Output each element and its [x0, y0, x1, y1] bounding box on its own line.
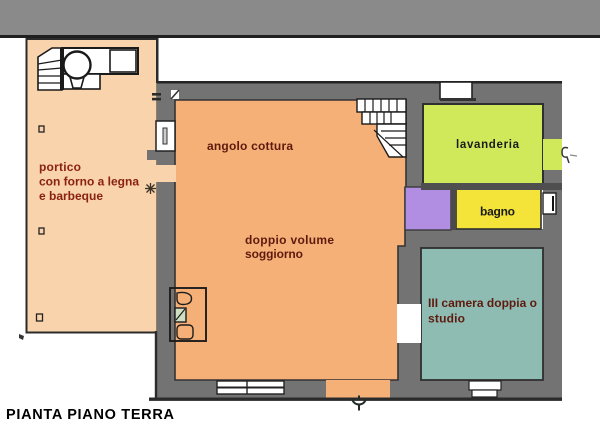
svg-text:portico: portico: [39, 160, 81, 174]
svg-text:soggiorno: soggiorno: [245, 247, 303, 261]
svg-text:III camera doppia o: III camera doppia o: [428, 296, 537, 310]
svg-text:studio: studio: [428, 312, 465, 326]
svg-text:e barbeque: e barbeque: [39, 189, 103, 203]
svg-text:con forno a legna: con forno a legna: [39, 175, 139, 189]
svg-text:bagno: bagno: [480, 205, 515, 219]
svg-text:PIANTA PIANO TERRA: PIANTA PIANO TERRA: [6, 407, 175, 423]
svg-text:lavanderia: lavanderia: [456, 139, 520, 151]
svg-text:angolo cottura: angolo cottura: [207, 139, 293, 153]
svg-text:doppio volume: doppio volume: [245, 233, 334, 247]
